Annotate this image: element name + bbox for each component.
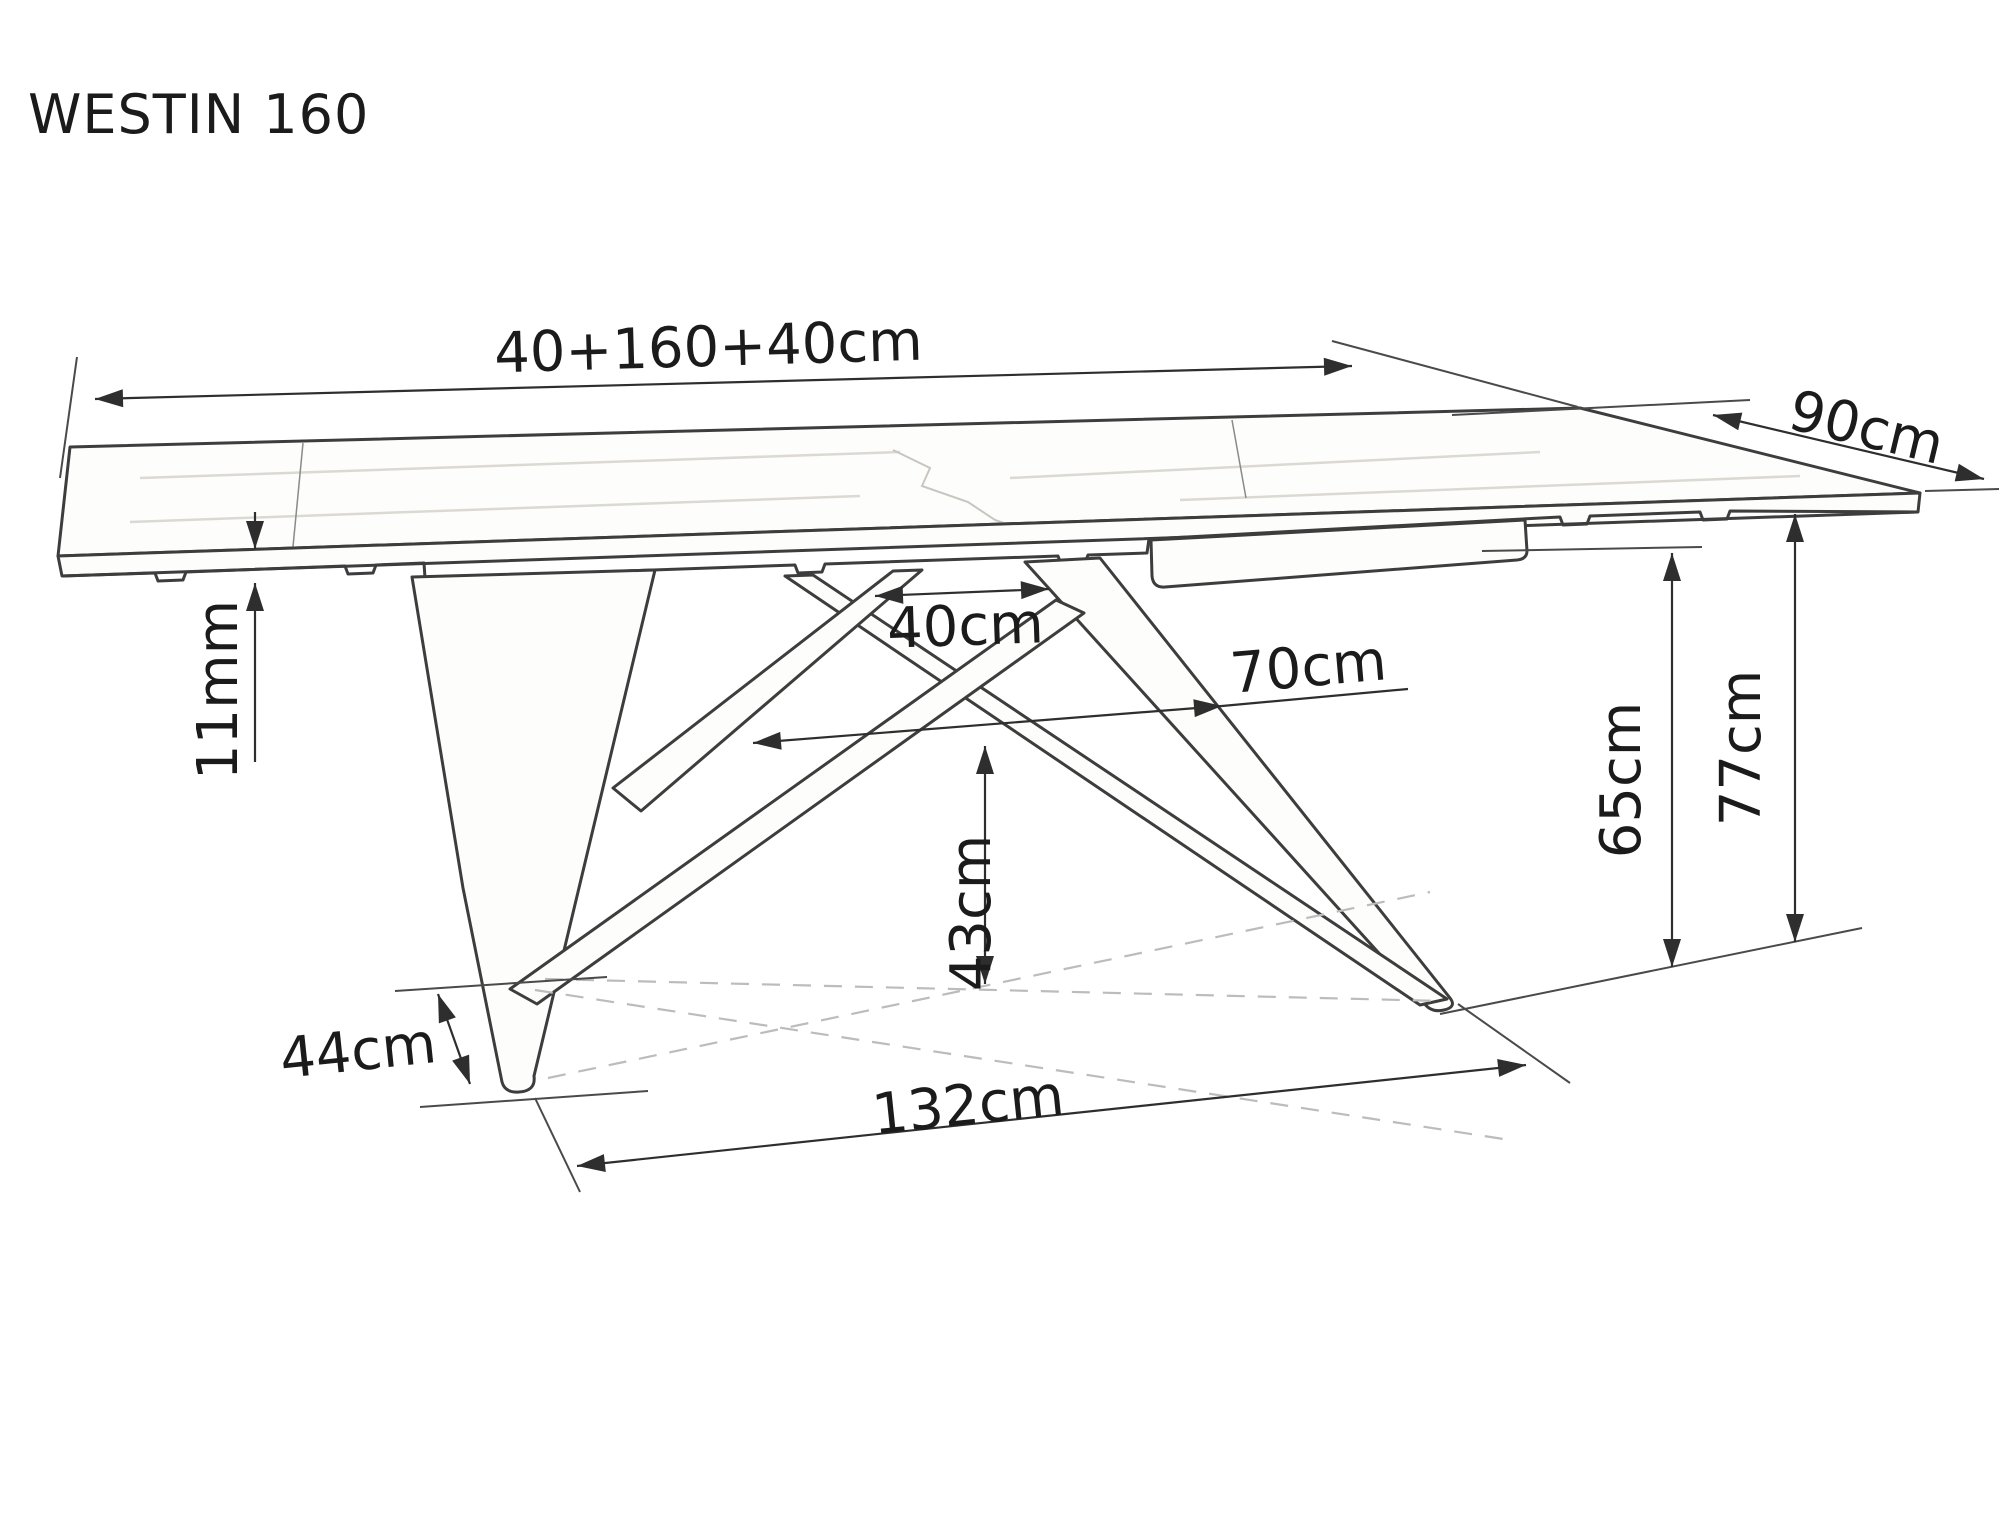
dim-label-base-mid-span: 70cm [1228, 628, 1390, 706]
technical-drawing-page: 40+160+40cm 90cm 11mm 40cm 70cm 65cm 77c… [0, 0, 2000, 1530]
extension-line [535, 1098, 580, 1192]
dim-label-base-cross-height: 43cm [939, 835, 1004, 992]
dimension-foot-depth: 44cm [277, 977, 648, 1107]
extension-line [1332, 341, 1578, 407]
extension-line [420, 1091, 648, 1107]
dim-label-underframe-clearance: 65cm [1589, 702, 1654, 859]
dim-label-total-width: 40+160+40cm [493, 309, 923, 387]
dimension-table-height: 77cm [1709, 514, 1795, 942]
dimension-line [438, 994, 470, 1084]
dimension-base-top-opening: 40cm [875, 589, 1049, 662]
dimension-underframe-clearance: 65cm [1440, 547, 1862, 1014]
dimension-base-length: 132cm [535, 1004, 1570, 1192]
dim-label-depth: 90cm [1783, 378, 1950, 478]
table-top [58, 408, 1920, 587]
dim-label-base-top-opening: 40cm [886, 591, 1045, 661]
base-left-upper-brace [613, 570, 922, 811]
dimension-base-mid-span: 70cm [753, 628, 1408, 743]
base-right-leg [1025, 558, 1452, 1011]
ground-reference-line [1440, 928, 1862, 1014]
table-dimension-drawing: 40+160+40cm 90cm 11mm 40cm 70cm 65cm 77c… [0, 0, 2000, 1530]
base-left-leg [412, 570, 655, 1092]
dim-label-top-thickness: 11mm [186, 600, 251, 780]
page-title: WESTIN 160 [28, 83, 369, 146]
dim-label-foot-depth: 44cm [277, 1011, 440, 1092]
dimension-base-cross-height: 43cm [939, 746, 1004, 991]
extension-line [1925, 489, 1999, 491]
dim-label-table-height: 77cm [1709, 670, 1774, 827]
dim-label-base-length: 132cm [869, 1063, 1067, 1148]
